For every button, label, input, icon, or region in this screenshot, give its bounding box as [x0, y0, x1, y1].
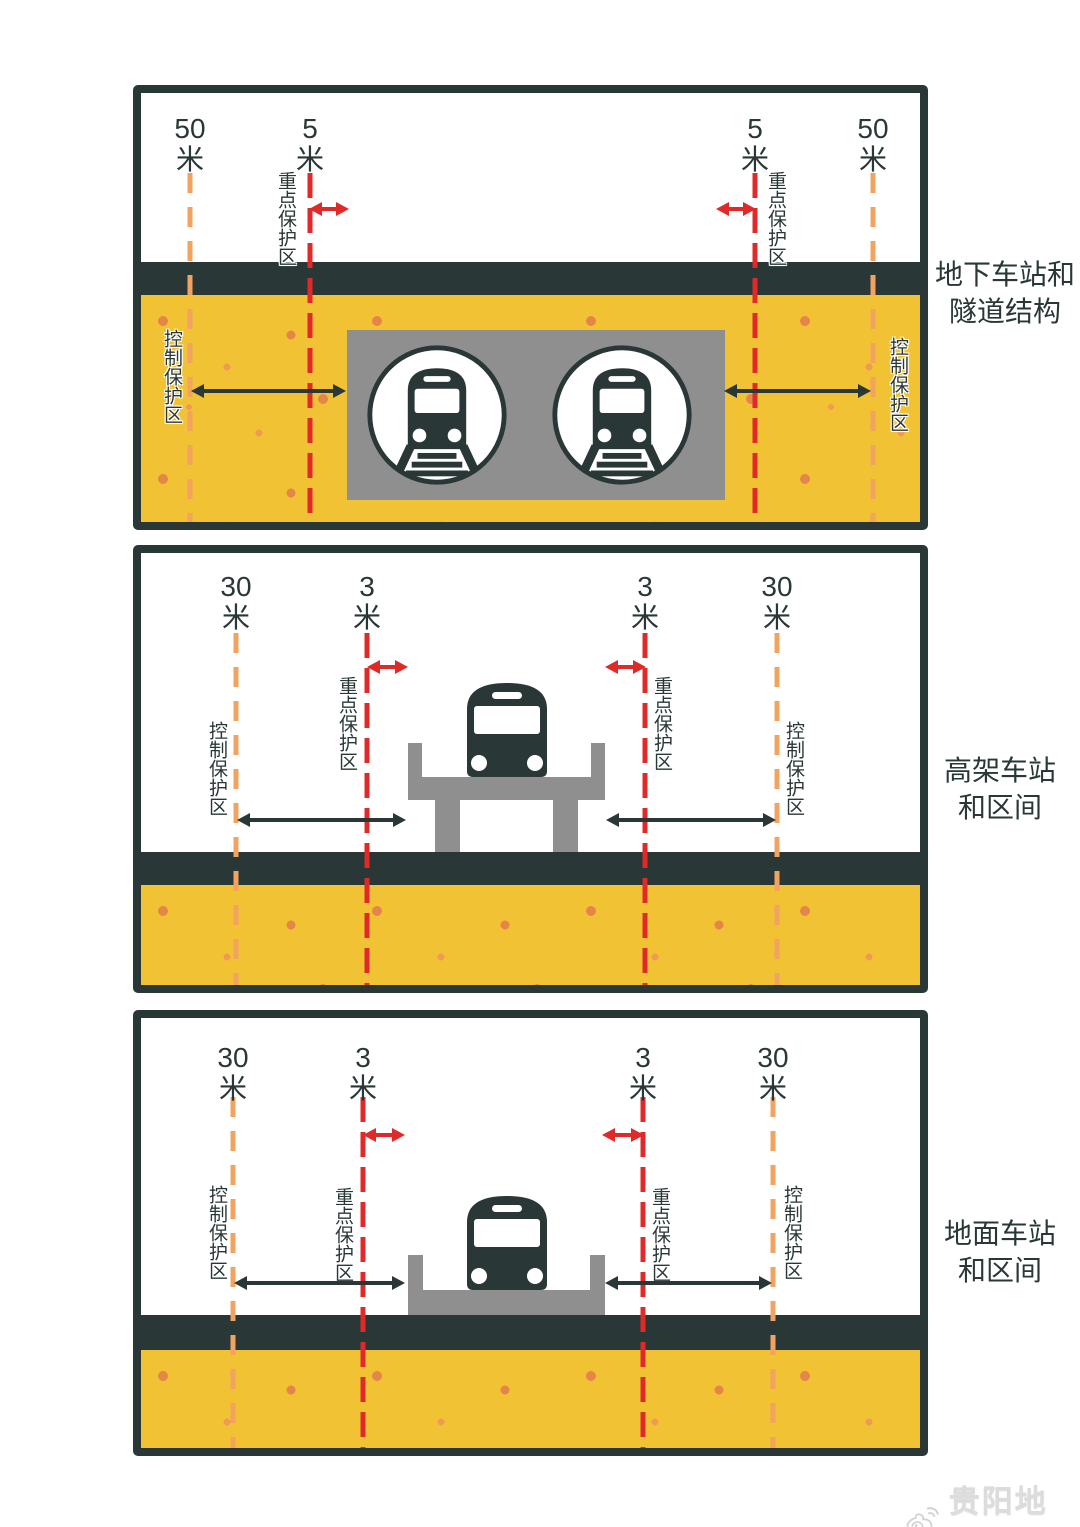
tunnel-train-icon — [364, 342, 510, 488]
pier-column-left — [435, 800, 460, 852]
control-zone-line-right — [771, 1097, 776, 1448]
key-zone-label-right: 重点保护区 — [763, 171, 787, 266]
train-icon — [461, 1192, 553, 1290]
control-zone-label-left: 控制保护区 — [204, 1185, 228, 1280]
control-zone-line-right — [775, 633, 780, 985]
soil-ground — [141, 1350, 920, 1448]
control-distance-arrow-right — [616, 1281, 761, 1285]
key-distance-arrow-left — [320, 207, 338, 211]
key-zone-line-right — [643, 633, 648, 985]
tunnel-train-icon — [549, 342, 695, 488]
key-zone-label-left: 重点保护区 — [273, 171, 297, 266]
key-zone-line-left — [365, 633, 370, 985]
key-zone-line-left — [308, 173, 313, 522]
panel-elevated: 30米 3米 3米 30米 重点保护区 重点保护区 控制保护区 控制保护区 — [133, 545, 928, 993]
distance-label-outer-right: 50米 — [857, 113, 888, 175]
control-distance-arrow-right — [617, 818, 765, 822]
control-zone-label-right: 控制保护区 — [781, 721, 805, 816]
watermark-text: 贵阳地铁 — [949, 1476, 1080, 1527]
soil-ground — [141, 885, 920, 985]
panel-ground-level: 30米 3米 3米 30米 重点保护区 重点保护区 控制保护区 控制保护区 — [133, 1010, 928, 1456]
distance-label-outer-left: 50米 — [174, 113, 205, 175]
weibo-icon — [903, 1501, 943, 1527]
key-zone-label-right: 重点保护区 — [647, 1187, 671, 1282]
distance-label-outer-left: 30米 — [217, 1042, 248, 1104]
control-distance-arrow-right — [735, 389, 860, 393]
distance-label-inner-right: 3米 — [629, 1042, 657, 1104]
control-zone-line-left — [234, 633, 239, 985]
key-distance-arrow-left — [374, 1133, 394, 1137]
distance-label-inner-left: 3米 — [349, 1042, 377, 1104]
road-surface — [141, 852, 920, 885]
tunnel-structure-box — [347, 330, 725, 500]
panel-caption-underground: 地下车站和隧道结构 — [920, 256, 1080, 330]
viaduct-deck — [408, 777, 605, 800]
key-zone-label-left: 重点保护区 — [330, 1187, 354, 1282]
pier-column-right — [553, 800, 578, 852]
control-zone-label-right: 控制保护区 — [779, 1185, 803, 1280]
panel-caption-elevated: 高架车站和区间 — [915, 752, 1080, 826]
key-distance-arrow-right — [727, 207, 745, 211]
distance-label-outer-right: 30米 — [757, 1042, 788, 1104]
panel-caption-ground: 地面车站和区间 — [915, 1215, 1080, 1289]
control-zone-line-left — [231, 1097, 236, 1448]
distance-label-outer-right: 30米 — [761, 571, 792, 633]
key-zone-line-right — [641, 1097, 646, 1448]
trackbed-base — [408, 1290, 605, 1315]
road-surface — [141, 1315, 920, 1350]
distance-label-outer-left: 30米 — [220, 571, 251, 633]
control-distance-arrow-left — [248, 818, 395, 822]
control-distance-arrow-left — [245, 1281, 394, 1285]
metro-protection-zone-diagram: 50米 5米 5米 50米 重点保护区 重点保护区 控制保护区 控制保护区 — [0, 0, 1080, 1527]
control-zone-label-right: 控制保护区 — [885, 337, 909, 432]
control-zone-line-left — [188, 173, 193, 522]
watermark: 贵阳地铁 — [903, 1476, 1080, 1527]
key-distance-arrow-right — [613, 1133, 633, 1137]
control-zone-label-left: 控制保护区 — [159, 329, 183, 424]
control-distance-arrow-left — [202, 389, 335, 393]
key-zone-label-right: 重点保护区 — [649, 676, 673, 771]
road-surface — [141, 262, 920, 295]
control-zone-label-left: 控制保护区 — [204, 721, 228, 816]
control-zone-line-right — [871, 173, 876, 522]
distance-label-inner-left: 5米 — [296, 113, 324, 175]
key-zone-line-left — [361, 1097, 366, 1448]
distance-label-inner-left: 3米 — [353, 571, 381, 633]
key-zone-label-left: 重点保护区 — [334, 676, 358, 771]
train-icon — [461, 679, 553, 777]
panel-underground: 50米 5米 5米 50米 重点保护区 重点保护区 控制保护区 控制保护区 — [133, 85, 928, 530]
distance-label-inner-right: 3米 — [631, 571, 659, 633]
key-distance-arrow-right — [616, 665, 635, 669]
key-zone-line-right — [753, 173, 758, 522]
distance-label-inner-right: 5米 — [741, 113, 769, 175]
key-distance-arrow-left — [378, 665, 397, 669]
